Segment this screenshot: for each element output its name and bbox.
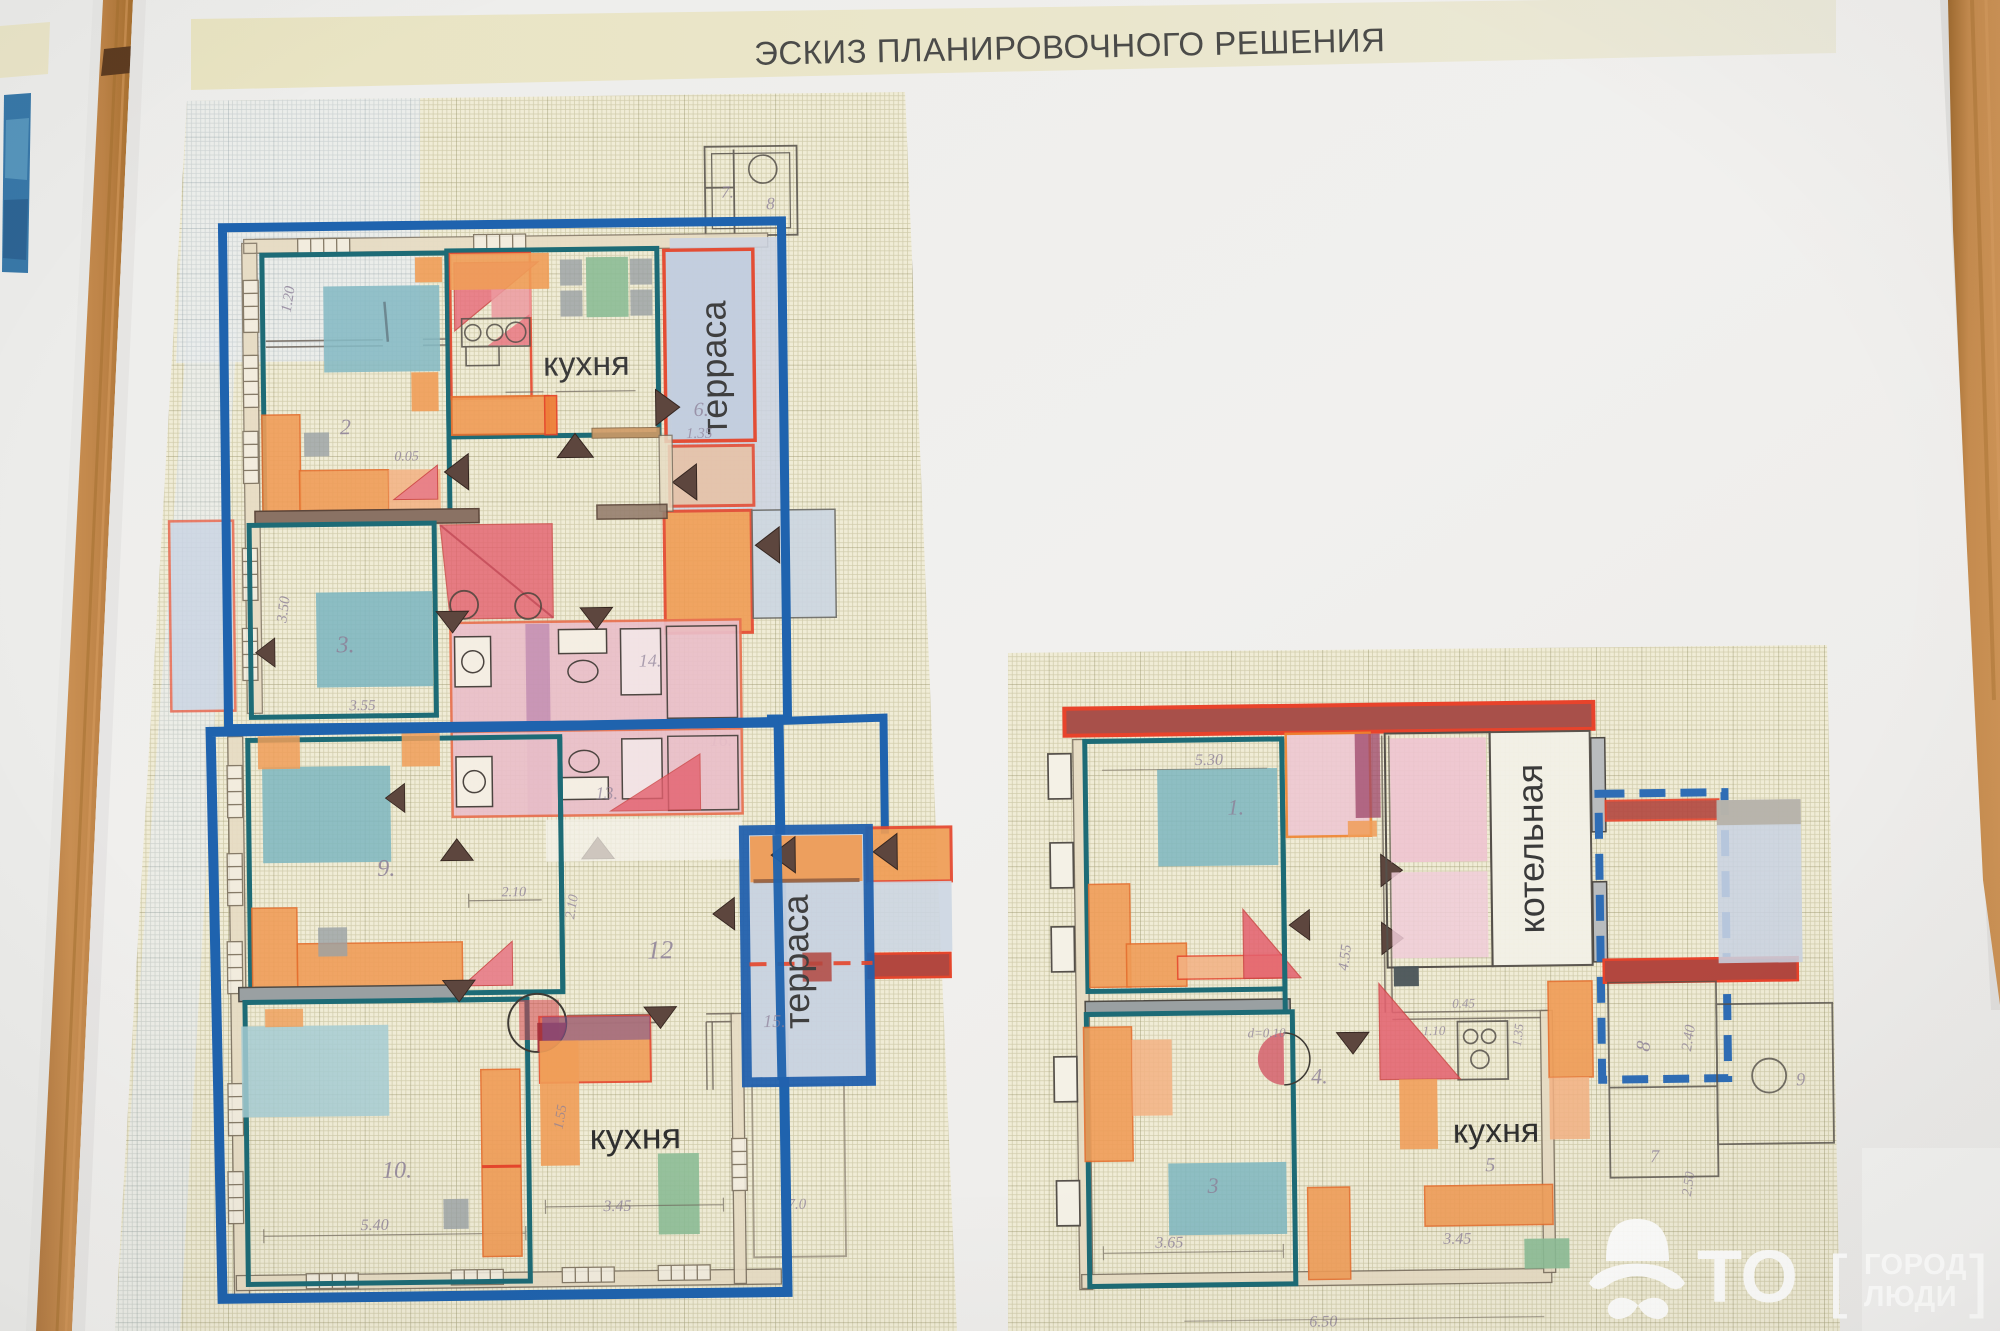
svg-text:3.55: 3.55 [348, 698, 376, 714]
svg-text:4.: 4. [1311, 1063, 1328, 1088]
svg-text:0.05: 0.05 [394, 449, 419, 464]
svg-text:5: 5 [1485, 1154, 1495, 1176]
svg-text:3.65: 3.65 [1154, 1234, 1183, 1251]
svg-text:4.55: 4.55 [1336, 943, 1355, 972]
svg-text:3.: 3. [335, 632, 354, 658]
svg-text:15.: 15. [763, 1011, 786, 1031]
svg-text:1.: 1. [1227, 794, 1244, 819]
svg-text:[: [ [1828, 1241, 1847, 1319]
svg-text:котельная: котельная [1509, 764, 1552, 934]
svg-text:6.50: 6.50 [1309, 1313, 1337, 1330]
svg-text:1.35: 1.35 [1509, 1022, 1527, 1047]
svg-text:12: 12 [647, 935, 673, 964]
svg-text:2: 2 [340, 414, 351, 439]
svg-text:2.10: 2.10 [502, 885, 527, 900]
svg-text:7.: 7. [721, 182, 734, 201]
svg-text:9: 9 [1796, 1069, 1805, 1089]
svg-text:13.: 13. [595, 783, 618, 803]
svg-text:1.35: 1.35 [686, 426, 713, 442]
svg-text:3.45: 3.45 [1442, 1230, 1471, 1247]
svg-text:5.30: 5.30 [1195, 752, 1223, 769]
svg-text:ГОРОД: ГОРОД [1864, 1249, 1967, 1281]
svg-text:кухня: кухня [589, 1115, 681, 1157]
svg-text:кухня: кухня [543, 345, 630, 384]
svg-text:9.: 9. [377, 856, 395, 882]
svg-text:5.40: 5.40 [361, 1217, 389, 1234]
svg-text:1.10: 1.10 [1422, 1023, 1445, 1038]
svg-text:7: 7 [1650, 1146, 1660, 1166]
svg-text:14.: 14. [639, 650, 662, 670]
svg-text:]: ] [1969, 1241, 1988, 1319]
svg-text:ТО: ТО [1697, 1235, 1798, 1318]
svg-text:10.: 10. [382, 1157, 412, 1183]
svg-text:d=0.10: d=0.10 [1247, 1025, 1286, 1041]
svg-text:3: 3 [1206, 1173, 1218, 1198]
svg-text:8: 8 [766, 194, 775, 213]
svg-text:кухня: кухня [1453, 1112, 1540, 1151]
svg-text:6.: 6. [694, 399, 709, 421]
svg-text:ЛЮДИ: ЛЮДИ [1864, 1281, 1957, 1313]
svg-text:0.45: 0.45 [1452, 995, 1475, 1010]
